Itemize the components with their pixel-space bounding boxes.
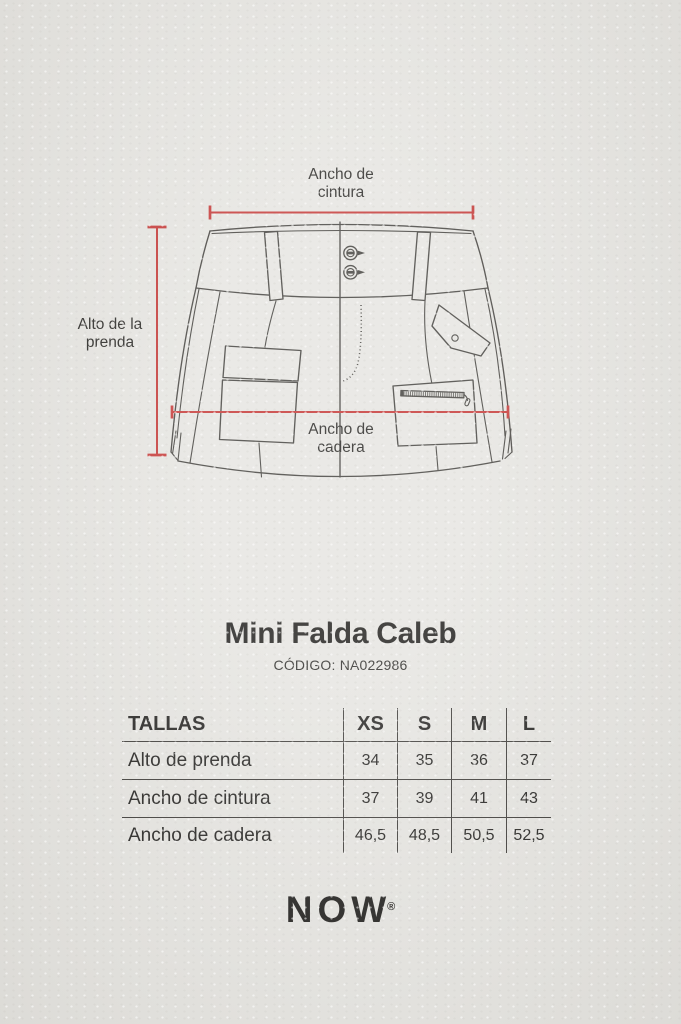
- size-value-cell: 48,5: [397, 818, 451, 853]
- waist-measure-line: [210, 206, 473, 220]
- hip-width-label: Ancho de cadera: [295, 421, 387, 456]
- size-table-header: TALLAS: [122, 708, 343, 742]
- waistband: [196, 225, 488, 298]
- waist-width-label: Ancho de cintura: [295, 166, 387, 201]
- flap-pocket: [432, 305, 490, 356]
- size-value-cell: 52,5: [506, 818, 551, 853]
- size-value-cell: 34: [343, 742, 397, 780]
- size-value-cell: 36: [451, 742, 506, 780]
- size-value-cell: 41: [451, 780, 506, 818]
- size-column-m: M: [451, 708, 506, 742]
- button-icon: [344, 266, 365, 279]
- size-value-cell: 50,5: [451, 818, 506, 853]
- garment-height-label: Alto de la prenda: [68, 316, 152, 351]
- belt-loop: [265, 232, 284, 301]
- size-value-cell: 39: [397, 780, 451, 818]
- size-value-cell: 37: [343, 780, 397, 818]
- row-label-cadera: Ancho de cadera: [122, 818, 343, 853]
- size-column-xs: XS: [343, 708, 397, 742]
- waist-buttons: [344, 246, 365, 279]
- product-code: CÓDIGO: NA022986: [0, 657, 681, 673]
- size-table: TALLAS XS S M L Alto de prenda 34 35 36 …: [122, 708, 551, 853]
- size-value-cell: 37: [506, 742, 551, 780]
- size-guide-page: Ancho de cintura Alto de la prenda Ancho…: [0, 0, 681, 1024]
- belt-loop: [412, 232, 431, 301]
- row-label-alto: Alto de prenda: [122, 742, 343, 780]
- size-column-s: S: [397, 708, 451, 742]
- cargo-pocket: [220, 346, 302, 443]
- size-value-cell: 46,5: [343, 818, 397, 853]
- size-column-l: L: [506, 708, 551, 742]
- brand-logo-text: NOW: [286, 889, 391, 930]
- button-icon: [344, 246, 365, 259]
- product-title: Mini Falda Caleb: [0, 617, 681, 651]
- fly-stitch-dotted-line: [341, 305, 361, 382]
- size-value-cell: 43: [506, 780, 551, 818]
- skirt-technical-drawing: [0, 0, 681, 560]
- row-label-cintura: Ancho de cintura: [122, 780, 343, 818]
- brand-logo: NOW®: [0, 889, 681, 931]
- registered-mark-icon: ®: [387, 901, 395, 913]
- size-value-cell: 35: [397, 742, 451, 780]
